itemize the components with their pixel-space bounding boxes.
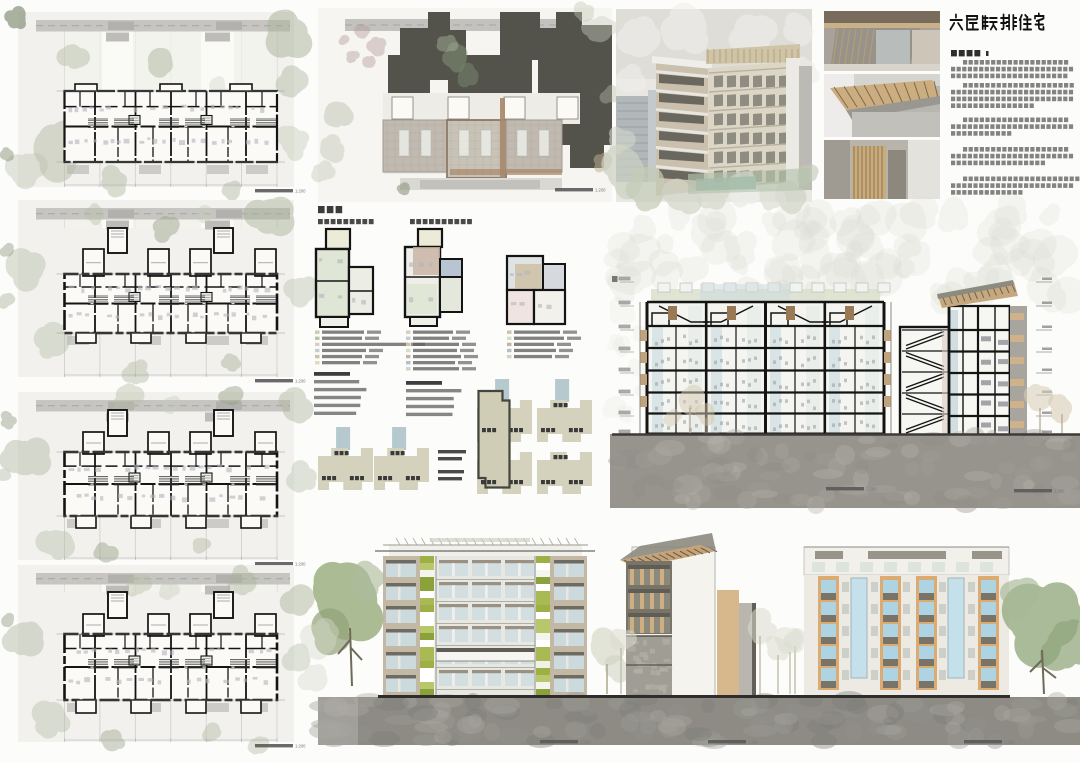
- svg-text:1:200: 1:200: [1004, 740, 1015, 745]
- svg-text:1:200: 1:200: [295, 562, 306, 567]
- svg-text:1:200: 1:200: [295, 744, 306, 749]
- svg-text:1:200: 1:200: [295, 379, 306, 384]
- svg-text:1:200: 1:200: [748, 740, 759, 745]
- svg-text:1:200: 1:200: [295, 189, 306, 194]
- svg-text:1:200: 1:200: [595, 188, 606, 193]
- svg-text:1:200: 1:200: [1054, 489, 1065, 494]
- svg-text:1:200: 1:200: [866, 487, 877, 492]
- svg-text:1:200: 1:200: [580, 740, 591, 745]
